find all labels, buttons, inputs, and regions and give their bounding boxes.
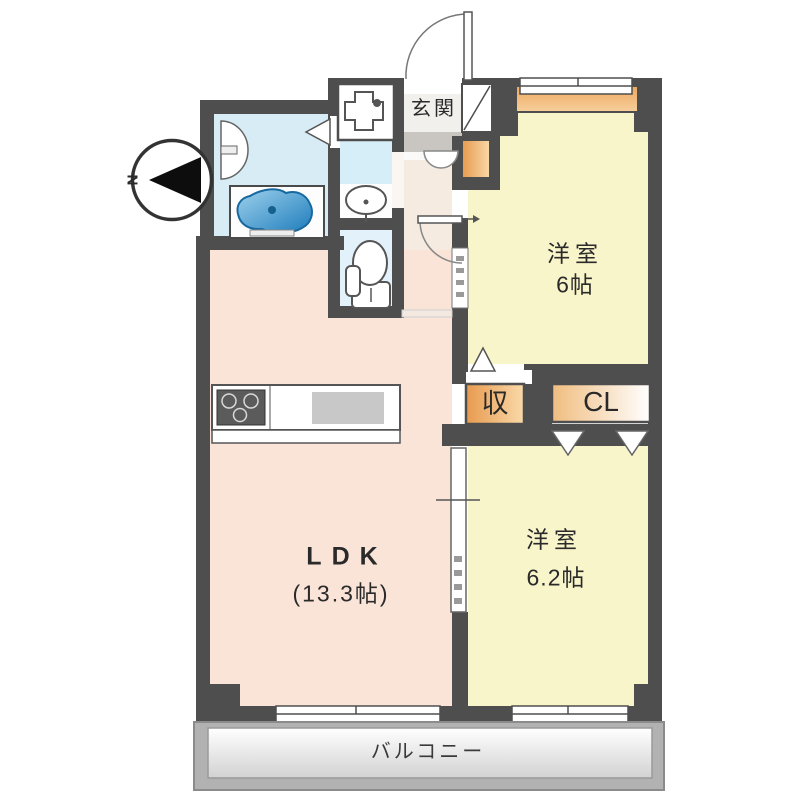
- closet-label: CL: [583, 388, 619, 416]
- entrance-label: 玄関: [411, 99, 457, 119]
- floorplan: N 玄関 洋室 6帖 収 CL 洋室 6.2帖 LDK (13.3帖) バルコニ…: [0, 0, 800, 800]
- ldk-size-label: (13.3帖): [292, 583, 389, 606]
- shoe-cabinet-icon: [462, 84, 492, 178]
- washing-machine-pan-icon: [338, 84, 394, 140]
- bathtub-icon: [230, 186, 324, 238]
- bedroom2-size-label: 6.2帖: [527, 567, 586, 590]
- sliding-door-hall: [452, 248, 468, 308]
- window-bedroom2: [512, 706, 628, 722]
- compass-north-label: N: [126, 175, 141, 186]
- floorplan-graphic: [0, 0, 800, 800]
- balcony-label: バルコニー: [371, 742, 486, 762]
- window-top: [520, 78, 632, 94]
- bedroom1-type-label: 洋室: [547, 243, 603, 266]
- storage-label: 収: [482, 391, 509, 418]
- bedroom1-size-label: 6帖: [556, 274, 594, 297]
- north-arrow-icon: [133, 141, 212, 220]
- ldk-label: LDK: [306, 545, 387, 570]
- bedroom2-type-label: 洋室: [526, 529, 582, 552]
- window-ldk: [276, 706, 440, 722]
- kitchen-counter: [212, 385, 400, 443]
- entrance-door-icon: [406, 12, 472, 80]
- sink-icon: [312, 392, 384, 424]
